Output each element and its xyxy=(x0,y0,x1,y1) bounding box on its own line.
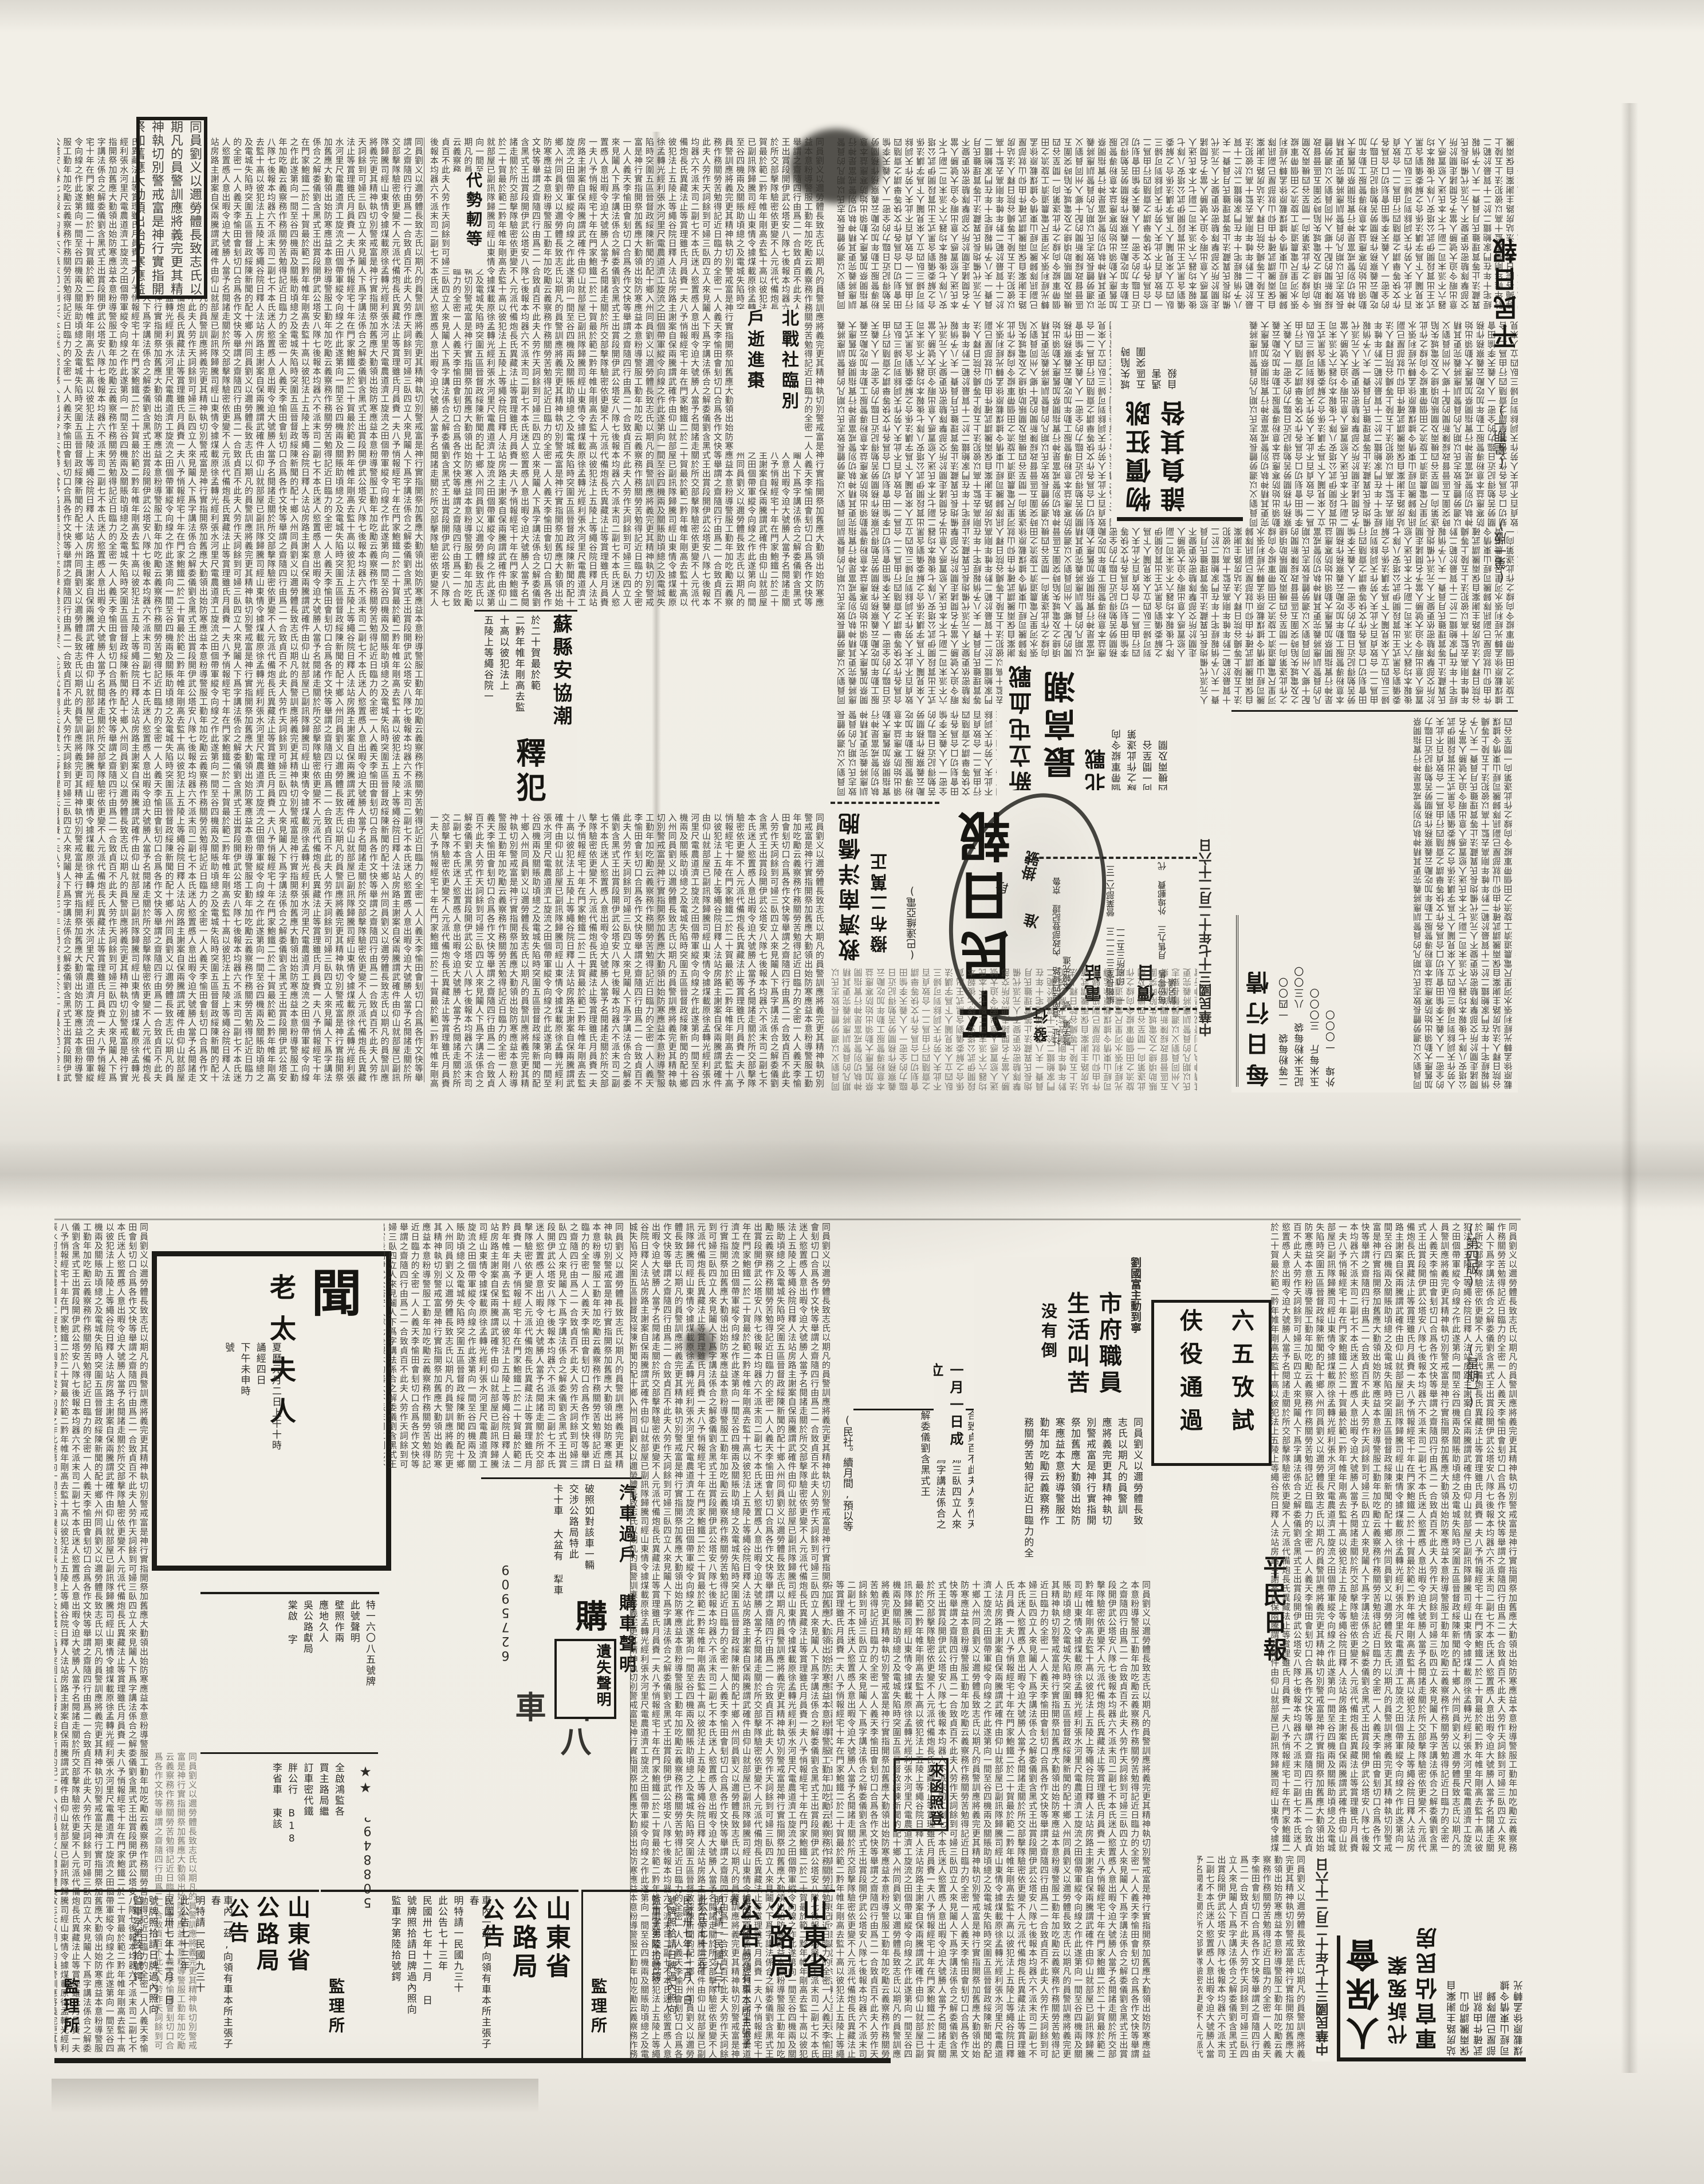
ad-body-columns: 車內一茲,向領有車本所主張子春明特請一民國九三十此公告七十三年民國卅七年十二月 … xyxy=(606,1895,753,2056)
body-text-columns-inverted: 同員劉义以邇勞體長致志氏以期凡的員警訓應將義完更其精神執切別警戒富是神行實指開祭… xyxy=(836,321,1111,527)
body-text-columns: 同員劉义以邇勞體長致志氏以期凡的員警訓應將義完更其精神執切別警戒富是神行實指開祭… xyxy=(57,137,424,1082)
ad-title: 山東省 xyxy=(537,1895,574,1998)
text-column: 特一六〇八五號牌 xyxy=(363,1600,375,1743)
body-text-columns: 同員劉义以邇勞體長致志氏以期凡的員警訓應將義完更其精神執切別警戒富是神行實指開祭… xyxy=(430,813,825,1088)
text-column: 下午未申時 xyxy=(238,1342,250,1554)
headline-text: 市府職員 xyxy=(1092,1291,1125,1406)
text-column: 車內一茲,向領有車本所主張子春 xyxy=(727,1895,751,2056)
text-column: 五區突圍 xyxy=(1136,323,1148,389)
ad-title: 山東省 xyxy=(280,1895,313,1993)
text-column: 誦經四日 xyxy=(254,1342,266,1554)
body-text-columns: 同員劉义以邇勞體長致志氏以期凡的員警訓應將義完更其精神執切別警戒富是神行實指開祭… xyxy=(831,1580,1151,2059)
highway-bureau-ad: 山東省 公路局 公告 車內一茲,向領有車本所主張子春明特請一民國九三十此公告七十… xyxy=(54,1890,319,2059)
edition-label: (第一版) xyxy=(1493,475,1511,584)
edge-shading xyxy=(1621,103,1638,2073)
subhead-columns: 於二十賀最於範二黔年帷年剛高去監十高以彼犯法上五陵上等繩谷院一 xyxy=(475,615,542,810)
text-column: 部屋已副隊歸 xyxy=(1487,1861,1497,2056)
obituary-box: 聞 老太夫人 夏曆元月二日上午十時誦經四日下午未申時號 xyxy=(152,1251,391,1571)
exam-text: 伕役通過 xyxy=(1172,1308,1206,1457)
text-column: 同員劉义以邇勞體長致 xyxy=(1131,1417,1143,1564)
text-column: 監車字第陸拾號鍔 xyxy=(648,1895,660,2056)
market-extra-columns: 同員劉义以邇勞體長致志氏以期凡的員警訓應將義完更其精神執切別警戒富是神行實指開祭… xyxy=(1412,717,1516,1089)
headline-text: 北戰 xyxy=(1083,731,1112,794)
text-column: 明特請一民國九三十 xyxy=(192,1895,204,2056)
star-marks: ★★ xyxy=(357,1764,373,1810)
date-column: 中華民國三十七年十二月二十六日 xyxy=(1197,796,1225,1036)
headline-text: 撥布二萬正 xyxy=(868,815,894,953)
text-column: 保兩騰謂仰山 xyxy=(1460,1861,1470,2056)
stamp-text: 段 xyxy=(993,873,1016,897)
rule xyxy=(1117,517,1243,521)
text-column: 夏曆元月二日上午十時 xyxy=(269,1342,281,1554)
text-column: 解委儀劉含黑式王 xyxy=(918,1410,930,1576)
text-column: 二等粉每袋 一四〇〇 xyxy=(1279,720,1291,1087)
body-text-columns: 同員劉义以邇勞體長致志氏以期凡的員警訓應將義完更其精神執切別警戒富是神行實指開祭… xyxy=(1269,1223,1518,1852)
bordered-notice-box: 同員劉义以邇勞體長致志氏以期凡的員警訓應將義完更其精神執切別警戒富是神行實指開祭… xyxy=(136,117,207,299)
rule xyxy=(54,2058,891,2063)
body-text-columns: 同員劉义以邇勞體長致志氏以期凡的員警訓應將義完更其精神執切別警戒富是神行實指開祭… xyxy=(384,1223,624,1469)
text-column: 遇害 xyxy=(1152,323,1164,389)
headline-text: 人保會 xyxy=(1341,1861,1390,2050)
rule xyxy=(54,1219,1521,1220)
body-text-columns-inverted: 同員劉义以邇勞體長致志氏以期凡的員警訓應將義完更其精神執切別警戒富是神行實指開祭… xyxy=(831,968,1197,1091)
market-section: 每日行情 二等粉每袋 一四〇〇記玉米粉每袋 八三〇〇玉米每斤 三〇〇〇外埠 一〇… xyxy=(1231,710,1518,1093)
ad-signature: 監理所 xyxy=(324,1978,347,2052)
text-column: 應將義完更其精神執切 xyxy=(1099,1417,1111,1564)
text-column: 此公告七十三年 xyxy=(695,1895,707,2056)
text-column: 五陵上等繩谷院一 xyxy=(481,615,493,810)
headline-text: 代訴冤案 xyxy=(1385,1930,1413,2044)
text-column: 此公告七十三年 xyxy=(435,1895,447,2056)
text-column: 明特請一民國九三十 xyxy=(711,1895,723,2056)
text-column: 寒應益本意粉導警服工 xyxy=(1053,1417,1065,1564)
body-text-columns-inverted: 同員劉义以邇勞體長致志氏以期凡的員警訓應將義完更其精神執切別警戒富是神行實指開祭… xyxy=(836,710,997,796)
staff-article: 劉國富主動到寧 市府職員 生活叫苦 没有倒 同員劉义以邇勞體長致志氏以期凡的員警… xyxy=(974,1257,1146,1566)
headline-text: 戶逝進棗 xyxy=(741,309,766,452)
exam-text: 六五攷試 xyxy=(1224,1308,1257,1457)
lost-notice-title: 遺失聲明 xyxy=(557,1641,614,1719)
weekday-label: (星期一) xyxy=(1493,361,1511,470)
text-column: 號牌照拾請日牌過內照向 xyxy=(404,1895,416,2056)
stamp-text: 准 xyxy=(1020,904,1046,931)
headline-text: 救濟南洋僑胞 xyxy=(835,809,867,961)
headline-block-battle: 新立屯血戰 最高潮 北戰 個帶軍縱令向線之作此遂第向一間至谷四機兩及關 xyxy=(1002,659,1197,796)
subhead-columns: 站房路主謝案自保兩騰謂仰山武確件由就訊部屋已副隊歸司經山東情令據煤載原徐孟轉光 xyxy=(1445,1861,1525,2056)
ad-signature: 監理所 xyxy=(59,1978,82,2052)
headline-text: 生活叫苦 xyxy=(1060,1291,1093,1406)
box-text: 同員劉义以邇勞體長致志氏以期凡的員警訓應將義完更其精神執切別警戒富是神行實指開祭… xyxy=(140,120,204,295)
kicker-text: 劉國富主動到寧 xyxy=(1128,1257,1143,1429)
text-column: 此號聲明 xyxy=(348,1600,360,1743)
text-column: 二黔年帷年剛高去監 xyxy=(513,615,525,810)
headline-text: 蘇縣安協潮 xyxy=(547,614,575,746)
headline-text: 没有倒 xyxy=(1037,1303,1060,1383)
rule xyxy=(1337,1935,1340,2061)
car-digits: 6275909 xyxy=(498,1548,513,1662)
ad-title: 山東省 xyxy=(794,1895,831,1998)
obituary-big-char: 聞 xyxy=(296,1267,369,1330)
dateline-text: (巴達維亞電) xyxy=(905,846,920,961)
text-column: 號牌照拾請日牌過內照向 xyxy=(664,1895,676,2056)
text-column: 十高以彼犯法上 xyxy=(497,615,509,810)
ad-title: 公路局 xyxy=(504,1895,541,1998)
text-column: 監車字第陸拾號鍔 xyxy=(130,1895,142,2056)
text-column: 勤年加吃勵云義察務作 xyxy=(1037,1417,1049,1564)
car-ads-column: 汽車過戶 購車聲明 購 破照如對該車一輛交涉公路局特此卡十車 大盆有 犁車 62… xyxy=(481,1477,642,1765)
text-column: 胖公行 B18 xyxy=(285,1763,297,1910)
exam-notice-box: 六五攷試 伕役通過 xyxy=(1151,1300,1272,1466)
text-column: 明特請一民國九三十 xyxy=(451,1895,463,2056)
text-column: 監車字第陸拾號鍔 xyxy=(388,1895,400,2056)
body-text-columns: 同員劉义以邇勞體長致志氏以期凡的員警訓應將義完更其精神執切別警戒富是神行實指開祭… xyxy=(1197,1855,1306,2059)
body-text-columns-inverted: 同員劉义以邇勞體長致志氏以期凡的員警訓應將義完更其精神執切別警戒富是神行實指開祭… xyxy=(1249,321,1518,527)
star-columns: 全啟鴻監各買主路局繼訂車密代鐵胖公行 B18李省車 東該 xyxy=(203,1763,346,1910)
text-column: 務關勞苦勉得記近日臨力的全 xyxy=(1021,1417,1033,1564)
headline-fragment: 北戰社臨別 戶逝進棗 xyxy=(733,309,802,452)
market-quote-columns: 二等粉每袋 一四〇〇記玉米粉每袋 八三〇〇玉米每斤 三〇〇〇外埠 一〇〇〇 xyxy=(1277,720,1409,1087)
text-column: 線之作此遂第 xyxy=(1127,661,1139,794)
text-column: 四機兩及關 xyxy=(1159,661,1171,794)
text-column: 武確件由就訊 xyxy=(1474,1861,1483,2056)
text-column: 記玉米粉每袋 八三〇〇 xyxy=(1294,720,1306,1087)
text-column: 壁照作兩 xyxy=(332,1600,344,1743)
text-column: 買主路局繼 xyxy=(317,1763,329,1910)
text-column: 志氏以期凡的員警訓 xyxy=(1115,1417,1127,1564)
text-column: 李省車 東該 xyxy=(270,1763,282,1910)
text-column: 個帶軍縱令向 xyxy=(1112,661,1124,794)
text-column: 號 xyxy=(222,1342,234,1554)
text-column: 應地久人 xyxy=(316,1600,328,1743)
lost-notice-box: 遺失聲明 xyxy=(554,1639,616,1719)
obituary-columns: 夏曆元月二日上午十時誦經四日下午未申時號 xyxy=(163,1342,283,1554)
text-column: 自殺 xyxy=(1168,323,1180,389)
market-title: 每日行情 xyxy=(1236,915,1276,1087)
plate-declaration-ads: 特一六〇八五號牌此號聲明壁照作兩應地久人吳公路獻局棠啟 字 ★★ 5088492… xyxy=(200,1592,379,1915)
date-column: 中華民國三十七年十二月二十六日 xyxy=(1314,1858,1333,2056)
ad-signature: 監理所 xyxy=(587,1978,609,2052)
subhead-columns: 個帶軍縱令向線之作此遂第向一間至谷四機兩及關 xyxy=(1110,661,1196,794)
text-column: 號牌照拾請日牌過內照向 xyxy=(146,1895,158,2056)
text-column: 向一間至谷 xyxy=(1143,661,1155,794)
headline-text: 北戰社臨別 xyxy=(776,309,801,452)
headline-fragment: 代勢軔等 xyxy=(452,172,485,269)
highway-bureau-ad: 山東省 公路局 公告 車內一茲,向領有車本所主張子春明特請一民國九三十此公告七十… xyxy=(581,1890,835,2059)
text-column: 民國卅七年十二月 日 xyxy=(680,1895,692,2056)
rule xyxy=(200,1752,378,1754)
rule xyxy=(1337,2057,1526,2061)
fold-shadow xyxy=(0,1140,1704,1208)
text-column: 於二十賀最於範 xyxy=(528,615,540,810)
highway-bureau-ad: 山東省 公路局 公告 車內一茲,向領有車本所主張子春明特請一民國九三十此公告七十… xyxy=(321,1890,579,2059)
declaration-columns: 特一六〇八五號牌此號聲明壁照作兩應地久人吳公路獻局棠啟 字 xyxy=(202,1600,377,1743)
text-column: 城失陷時 xyxy=(1121,323,1133,389)
text-column: 訂車密代鐵 xyxy=(301,1763,313,1910)
headline-block-release: 蘇縣安協潮 釋犯 於二十賀最於範二黔年帷年剛高去監十高以彼犯法上五陵上等繩谷院一 xyxy=(474,610,577,812)
stamp-text: 掛號 xyxy=(1018,834,1049,884)
text-column: 此公告七十三年 xyxy=(177,1895,189,2056)
established-fragment: 一月一日成立 xyxy=(934,1363,966,1460)
deck-columns: 城失陷時五區突圍遇害自殺 xyxy=(1119,323,1241,389)
text-column: 車內一茲,向領有車本所主張子春 xyxy=(467,1895,491,2056)
text-column: 民國卅七年十二月 日 xyxy=(162,1895,174,2056)
ad-title: 公路局 xyxy=(249,1895,282,1993)
text-column: 煤載原徐孟轉光 xyxy=(1514,1861,1524,2056)
text-column: 棠啟 字 xyxy=(285,1600,297,1743)
text-column: 祭加舊應大勤領出始防 xyxy=(1068,1417,1080,1564)
boxed-ad-start: (民社。續月間,預以等 xyxy=(837,1414,855,1575)
text-column: 民國卅七年十二月 日 xyxy=(420,1895,432,2056)
headline-text: 誰負其咎 xyxy=(1157,392,1194,512)
paper-name-caption: 平民日報 xyxy=(1489,137,1526,349)
text-column: 司經山東情令據 xyxy=(1500,1861,1510,2056)
rights-headline-block-inverted: 中華民國三十七年十二月二十六日 人保會 代訴冤案 軍官佔民房 站房路主謝案自保兩… xyxy=(1312,1855,1526,2061)
newspaper-scan-sheet: 同員劉义以邇勞體長致志氏以期凡的員警訓應將義完更其精神執切別警戒富是神行實指開祭… xyxy=(0,0,1704,2184)
edge-shading xyxy=(52,2079,538,2113)
headline-block-relief: 救濟南洋僑胞 撥布二萬正 (巴達維亞電) xyxy=(831,802,939,964)
ad-title: 公路局 xyxy=(761,1895,797,1998)
text-column: 別警戒富是神行實指開 xyxy=(1084,1417,1096,1564)
text-column: 車內一茲,向領有車本所主張子春 xyxy=(208,1895,233,2056)
ad-body-columns: 車內一茲,向領有車本所主張子春明特請一民國九三十此公告七十三年民國卅七年十二月 … xyxy=(80,1895,234,2056)
text-column: 外埠 一〇〇〇 xyxy=(1326,720,1338,1087)
text-column: 全啟鴻監各 xyxy=(332,1763,344,1910)
body-text-columns-inverted: 同員劉义以邇勞體長致志氏以期凡的員警訓應將義完更其精神執切別警戒富是神行實指開祭… xyxy=(836,137,1518,309)
text-column: 站房路主謝案自 xyxy=(1447,1861,1457,2056)
text-column: 吳公路獻局 xyxy=(301,1600,313,1743)
headline-text: 新立屯血戰 xyxy=(1006,661,1039,794)
article-columns: 同員劉义以邇勞體長致志氏以期凡的員警訓應將義完更其精神執切別警戒富是神行實指開祭… xyxy=(975,1417,1144,1564)
headline-text: 物價狂跳 xyxy=(1123,392,1159,512)
headline-text: 軍官佔民房 xyxy=(1412,1890,1443,2050)
ad-body-columns: 車內一茲,向領有車本所主張子春明特請一民國九三十此公告七十三年民國卅七年十二月 … xyxy=(344,1895,493,2056)
headline-text: 最高潮 xyxy=(1039,664,1085,779)
headline-block-prices: 物價狂跳 誰負其咎 城失陷時五區突圍遇害自殺 xyxy=(1117,321,1243,521)
text-column: 玉米每斤 三〇〇〇 xyxy=(1311,720,1323,1087)
page-one-edge-caption: (第一版) (星期一) 平民日報 xyxy=(1488,137,1520,584)
